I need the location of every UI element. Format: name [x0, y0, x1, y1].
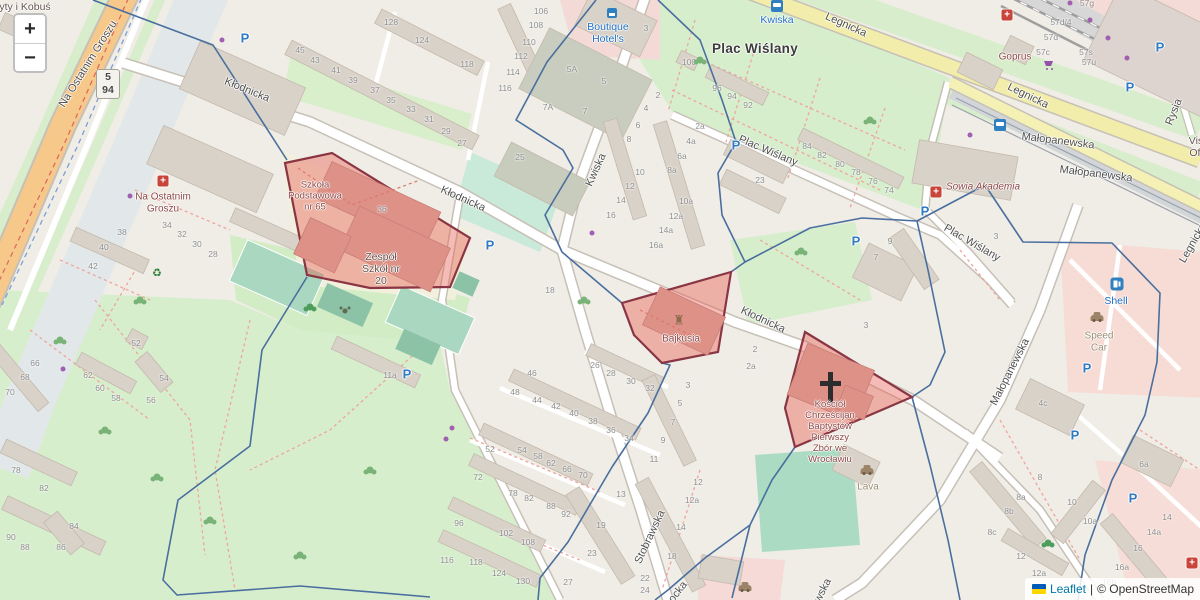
road-shield-number: 5 [97, 71, 119, 84]
ukraine-flag-icon [1032, 584, 1046, 594]
map-canvas[interactable]: Na Ostatnim GroszuKłodnickaKłodnickaKłod… [0, 0, 1200, 600]
map-vector-layer [0, 0, 1200, 600]
zoom-in-button[interactable]: + [15, 15, 45, 43]
openstreetmap-link[interactable]: © OpenStreetMap [1097, 582, 1194, 596]
attribution-bar: Leaflet | © OpenStreetMap [1025, 578, 1200, 600]
attribution-separator: | [1090, 582, 1093, 596]
zoom-control: + − [13, 13, 47, 73]
road-shield-number: 94 [97, 84, 119, 97]
zoom-out-button[interactable]: − [15, 43, 45, 71]
leaflet-link[interactable]: Leaflet [1050, 582, 1086, 596]
road-shield: 5 94 [96, 69, 120, 99]
